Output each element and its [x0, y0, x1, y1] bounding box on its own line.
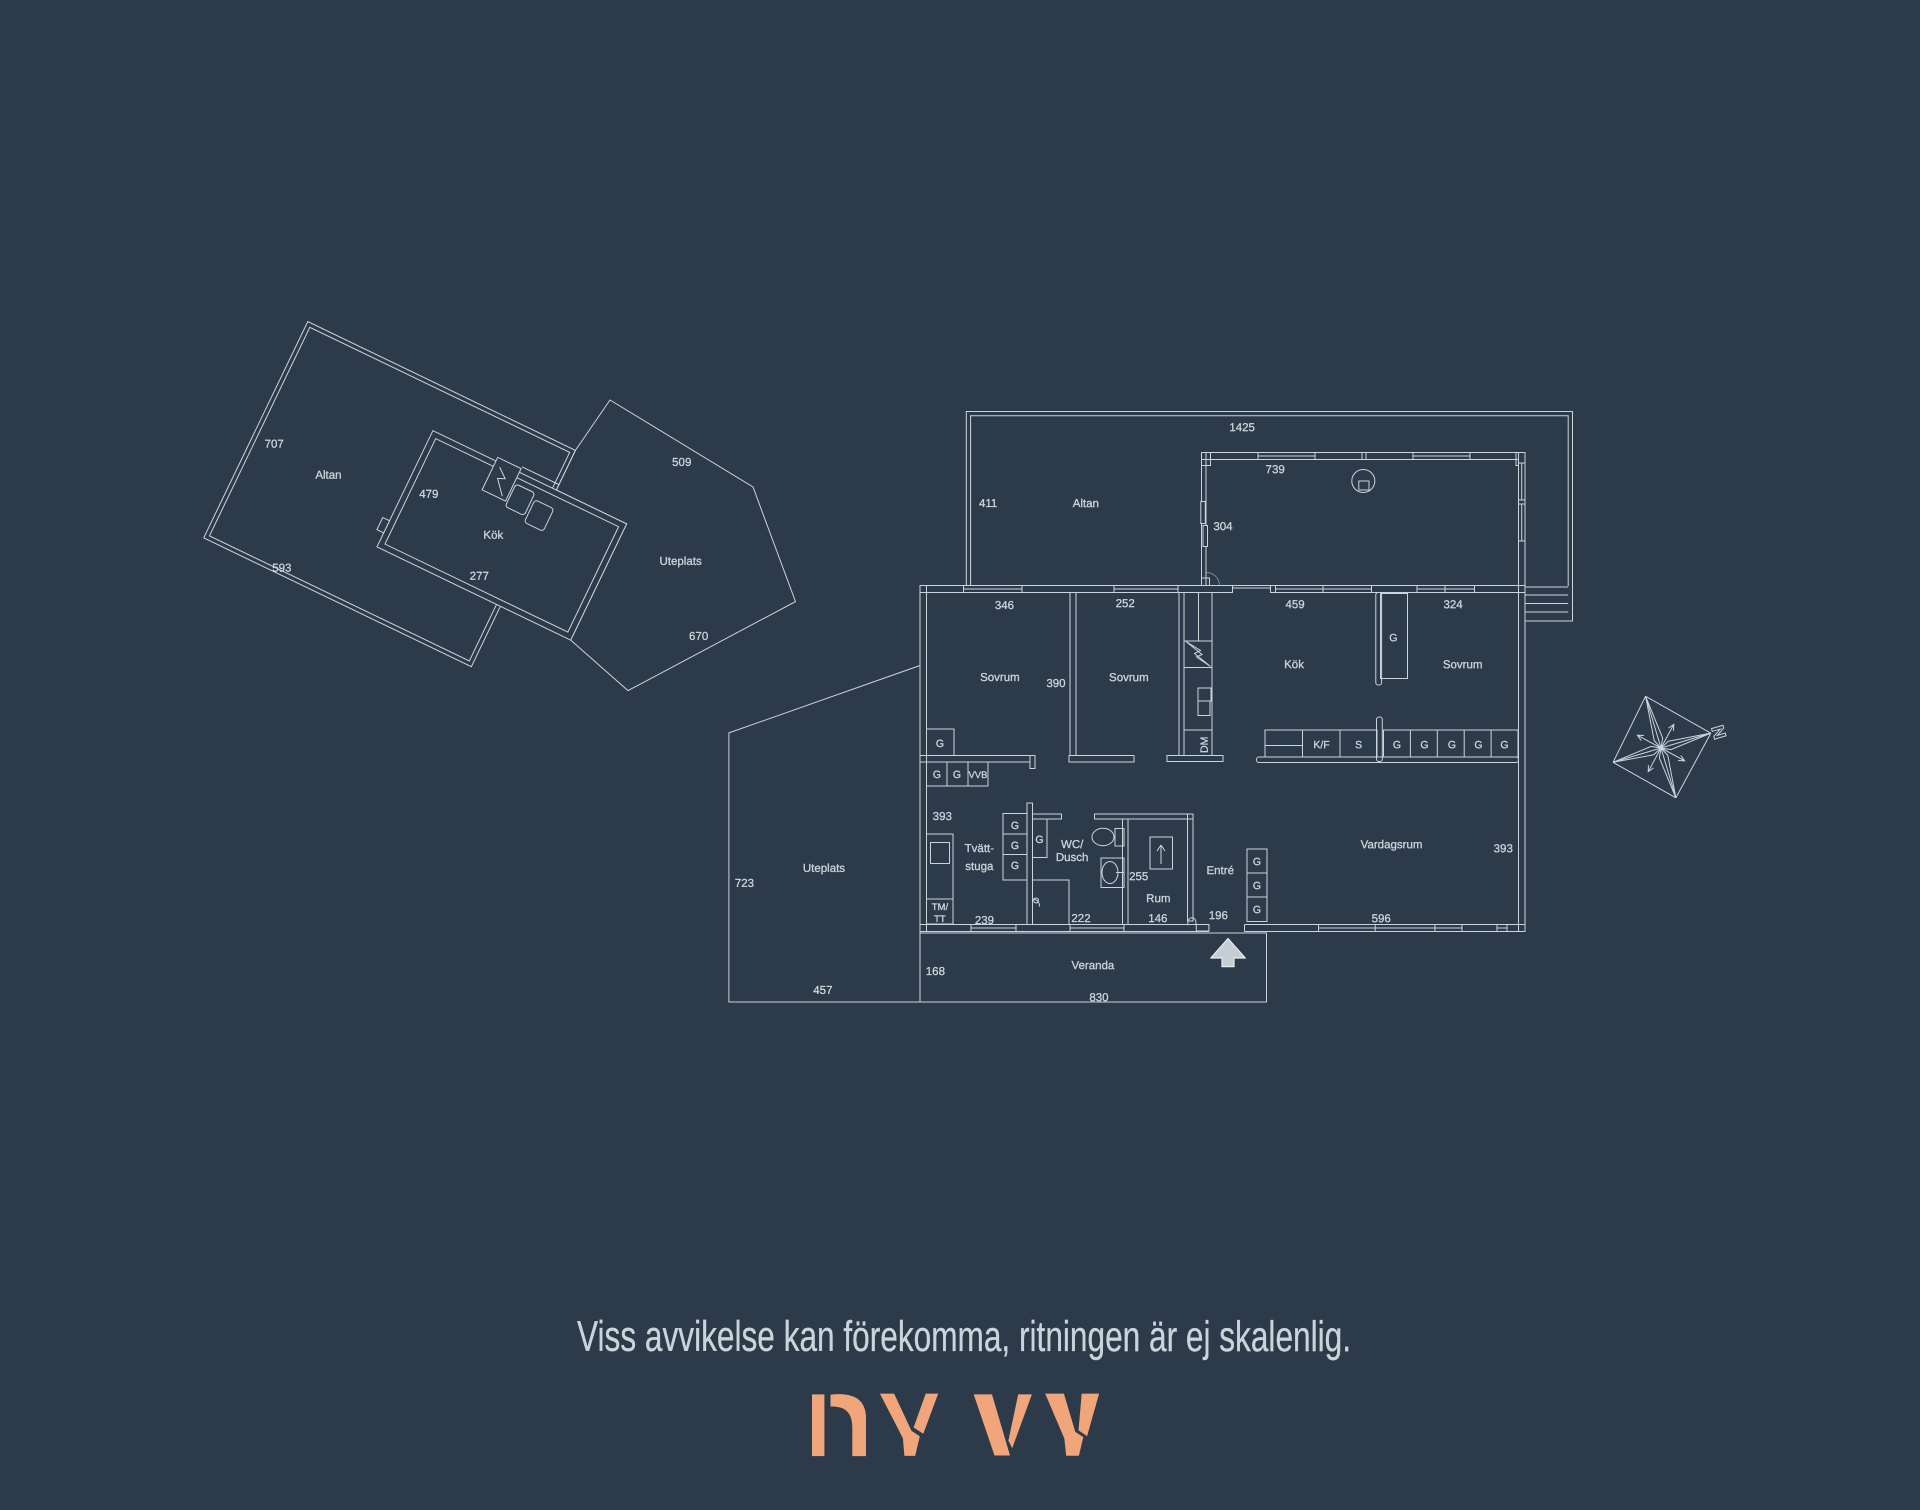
svg-text:Sovrum: Sovrum [980, 672, 1020, 684]
svg-text:TM/: TM/ [932, 902, 949, 913]
svg-text:411: 411 [979, 498, 997, 510]
svg-text:393: 393 [933, 811, 952, 823]
svg-text:G: G [933, 769, 941, 781]
svg-text:G: G [1253, 904, 1261, 916]
svg-text:509: 509 [672, 457, 691, 469]
svg-text:146: 146 [1148, 913, 1167, 925]
svg-text:G: G [1420, 739, 1428, 751]
svg-text:Tvätt-: Tvätt- [965, 843, 995, 855]
svg-text:457: 457 [813, 985, 832, 997]
svg-text:G: G [1474, 739, 1482, 751]
svg-text:G: G [1011, 820, 1019, 832]
svg-text:670: 670 [689, 631, 708, 643]
svg-text:Altan: Altan [1073, 498, 1099, 510]
svg-text:239: 239 [975, 915, 994, 927]
svg-text:168: 168 [926, 966, 945, 978]
svg-text:G: G [1500, 739, 1508, 751]
svg-text:Rum: Rum [1146, 893, 1170, 905]
svg-text:G: G [1448, 739, 1456, 751]
svg-text:222: 222 [1071, 913, 1090, 925]
svg-text:255: 255 [1129, 871, 1148, 883]
svg-text:252: 252 [1116, 598, 1135, 610]
svg-text:K/F: K/F [1313, 739, 1329, 751]
svg-text:593: 593 [272, 563, 291, 575]
svg-text:Altan: Altan [315, 470, 341, 482]
svg-text:277: 277 [470, 571, 489, 583]
svg-text:G: G [953, 769, 961, 781]
svg-text:DM: DM [1199, 737, 1211, 753]
svg-text:1425: 1425 [1229, 422, 1255, 434]
svg-text:707: 707 [265, 439, 284, 451]
svg-text:723: 723 [735, 878, 754, 890]
svg-text:739: 739 [1266, 464, 1285, 476]
svg-text:479: 479 [419, 489, 438, 501]
svg-text:196: 196 [1209, 910, 1228, 922]
svg-text:S: S [1355, 739, 1362, 751]
svg-text:346: 346 [995, 600, 1014, 612]
svg-text:stuga: stuga [965, 861, 994, 873]
svg-text:324: 324 [1443, 599, 1463, 611]
svg-text:Veranda: Veranda [1071, 960, 1114, 972]
svg-text:TT: TT [934, 914, 946, 925]
svg-text:Entré: Entré [1206, 865, 1234, 877]
svg-text:G: G [1011, 840, 1019, 852]
svg-text:G: G [1393, 739, 1401, 751]
svg-text:Uteplats: Uteplats [803, 863, 845, 875]
svg-text:G: G [1253, 856, 1261, 868]
svg-text:G: G [1035, 834, 1043, 846]
svg-text:Uteplats: Uteplats [660, 556, 702, 568]
svg-text:Sovrum: Sovrum [1109, 672, 1149, 684]
svg-text:G: G [936, 738, 944, 750]
svg-text:VVB: VVB [968, 770, 987, 781]
svg-text:Dusch: Dusch [1056, 852, 1089, 864]
svg-text:Viss avvikelse kan förekomma,: Viss avvikelse kan förekomma, ritningen … [577, 1313, 1351, 1361]
svg-text:304: 304 [1213, 521, 1233, 533]
svg-text:Kök: Kök [483, 530, 503, 542]
svg-text:G: G [1389, 632, 1397, 644]
svg-text:WC/: WC/ [1061, 839, 1084, 851]
svg-text:Kök: Kök [1284, 659, 1304, 671]
svg-text:830: 830 [1089, 992, 1108, 1004]
svg-text:G: G [1253, 880, 1261, 892]
svg-text:390: 390 [1046, 678, 1065, 690]
svg-text:G: G [1011, 860, 1019, 872]
svg-text:459: 459 [1285, 599, 1304, 611]
svg-text:596: 596 [1372, 913, 1391, 925]
svg-text:393: 393 [1494, 843, 1513, 855]
svg-text:Sovrum: Sovrum [1443, 659, 1483, 671]
svg-text:Vardagsrum: Vardagsrum [1361, 839, 1423, 851]
